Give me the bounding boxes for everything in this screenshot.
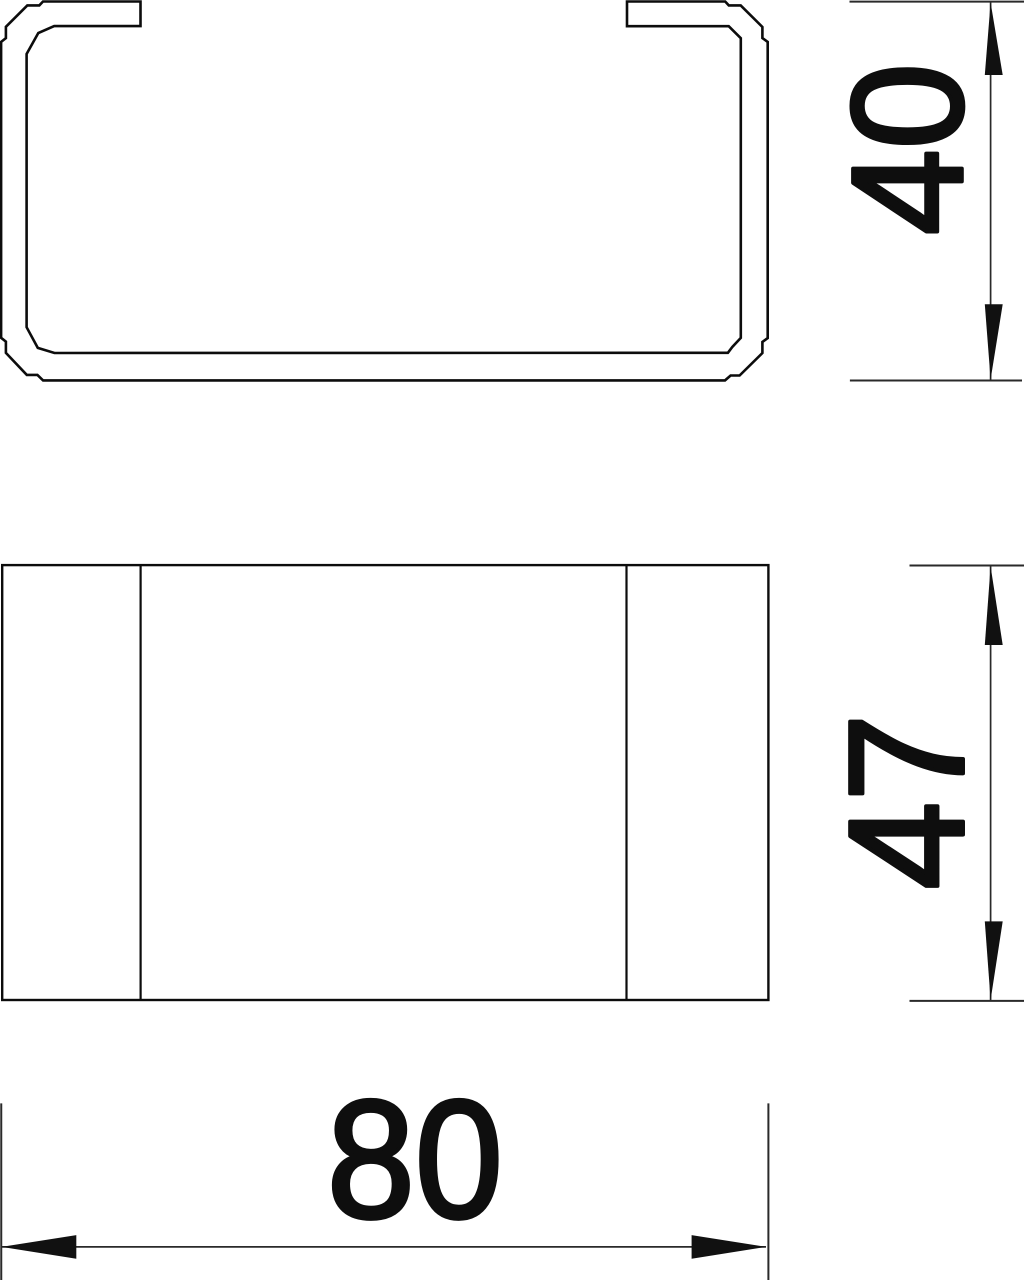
svg-text:47: 47 bbox=[815, 714, 998, 890]
svg-text:40: 40 bbox=[820, 63, 996, 235]
svg-text:80: 80 bbox=[327, 1065, 503, 1253]
